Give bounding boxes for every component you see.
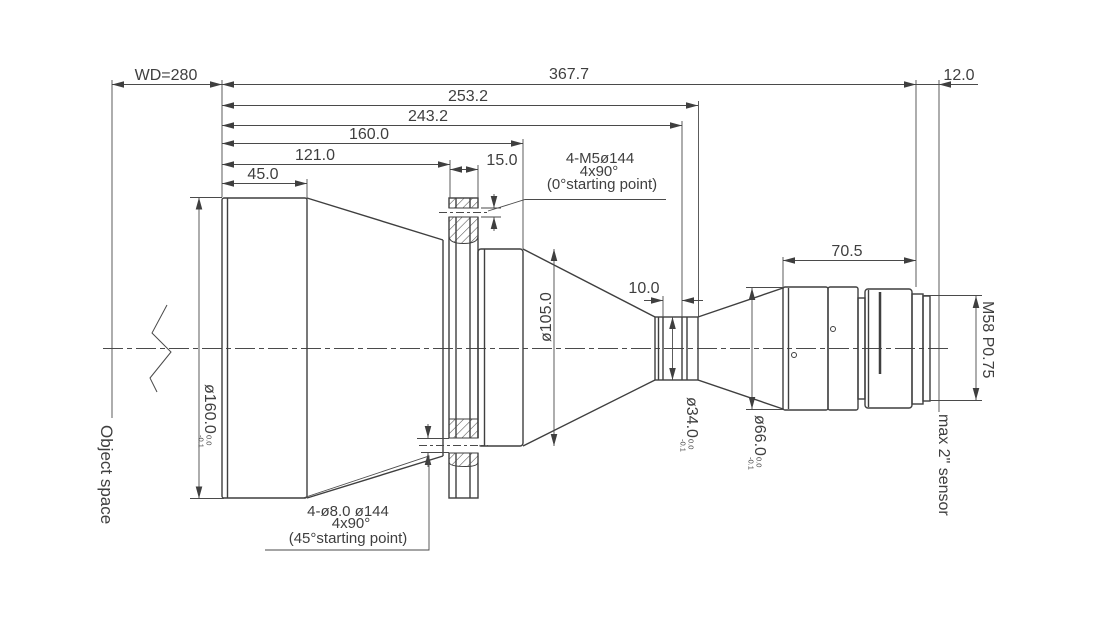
wd-label: WD=280 xyxy=(135,67,198,84)
lens-body xyxy=(222,198,930,498)
set-screw-dot xyxy=(792,353,797,358)
dia160-label-group: ø160.0 0.0 -0.1 xyxy=(197,384,219,448)
m58-thread-label-group: M58 P0.75 xyxy=(979,301,996,378)
phi8-note-line3: (45°starting point) xyxy=(289,530,408,547)
lens-technical-drawing: WD=280 367.7 253.2 243.2 160.0 121.0 45.… xyxy=(0,0,1103,638)
sensor-label-group: max 2" sensor xyxy=(935,414,952,516)
m5-note: 4-M5ø144 4x90° (0°starting point) xyxy=(547,150,657,193)
rear-length-label: 70.5 xyxy=(831,243,862,260)
len-45-label: 45.0 xyxy=(247,166,278,183)
front-barrel xyxy=(222,198,307,498)
dia160-label: ø160.0 xyxy=(201,384,218,434)
extension-lines xyxy=(112,80,982,499)
dia105-label-group: ø105.0 xyxy=(538,292,555,342)
len-243-label: 243.2 xyxy=(408,108,448,125)
mid-cone-bottom xyxy=(523,380,655,446)
front-cone-top xyxy=(307,198,443,240)
len-160-label: 160.0 xyxy=(349,126,389,143)
flange-thickness-label: 15.0 xyxy=(486,152,517,169)
len-253-label: 253.2 xyxy=(448,88,488,105)
dia105-label: ø105.0 xyxy=(538,292,555,342)
object-space-label-group: Object space xyxy=(97,425,116,524)
total-length-label: 367.7 xyxy=(549,66,589,83)
drawing-canvas: WD=280 367.7 253.2 243.2 160.0 121.0 45.… xyxy=(0,0,1103,638)
dia34-label: ø34.0 xyxy=(683,397,700,438)
dia66-label: ø66.0 xyxy=(751,415,768,456)
front-cone-bottom xyxy=(307,456,443,498)
m5-hole-hatch-upper xyxy=(449,198,478,208)
phi8-hole-hatch-lower xyxy=(449,453,478,467)
dia34-label-group: ø34.0 0.0 -0.1 xyxy=(679,397,701,452)
m5-note-line3: (0°starting point) xyxy=(547,176,657,193)
dimension-lines xyxy=(112,85,978,499)
rear-cone-top xyxy=(698,288,783,317)
flange-focal-label: 12.0 xyxy=(943,67,974,84)
phi8-note: 4-ø8.0 ø144 4x90° (45°starting point) xyxy=(289,503,408,547)
rear-cone-bottom xyxy=(698,380,783,409)
sensor-label: max 2" sensor xyxy=(935,414,952,516)
m5-note-leader xyxy=(488,200,666,212)
m58-thread-label: M58 P0.75 xyxy=(979,301,996,378)
m5-hole-hatch-lower xyxy=(449,217,478,244)
object-space-label: Object space xyxy=(97,425,116,524)
dia160-tol-lower: -0.1 xyxy=(197,435,206,448)
set-screw-dot xyxy=(831,327,836,332)
waist-length-label: 10.0 xyxy=(628,280,659,297)
phi8-hole-hatch-upper xyxy=(449,419,478,438)
dia34-tol-lower: -0.1 xyxy=(679,439,688,452)
len-121-label: 121.0 xyxy=(295,147,335,164)
dia66-label-group: ø66.0 0.0 -0.1 xyxy=(747,415,769,470)
dia66-tol-lower: -0.1 xyxy=(747,457,756,470)
